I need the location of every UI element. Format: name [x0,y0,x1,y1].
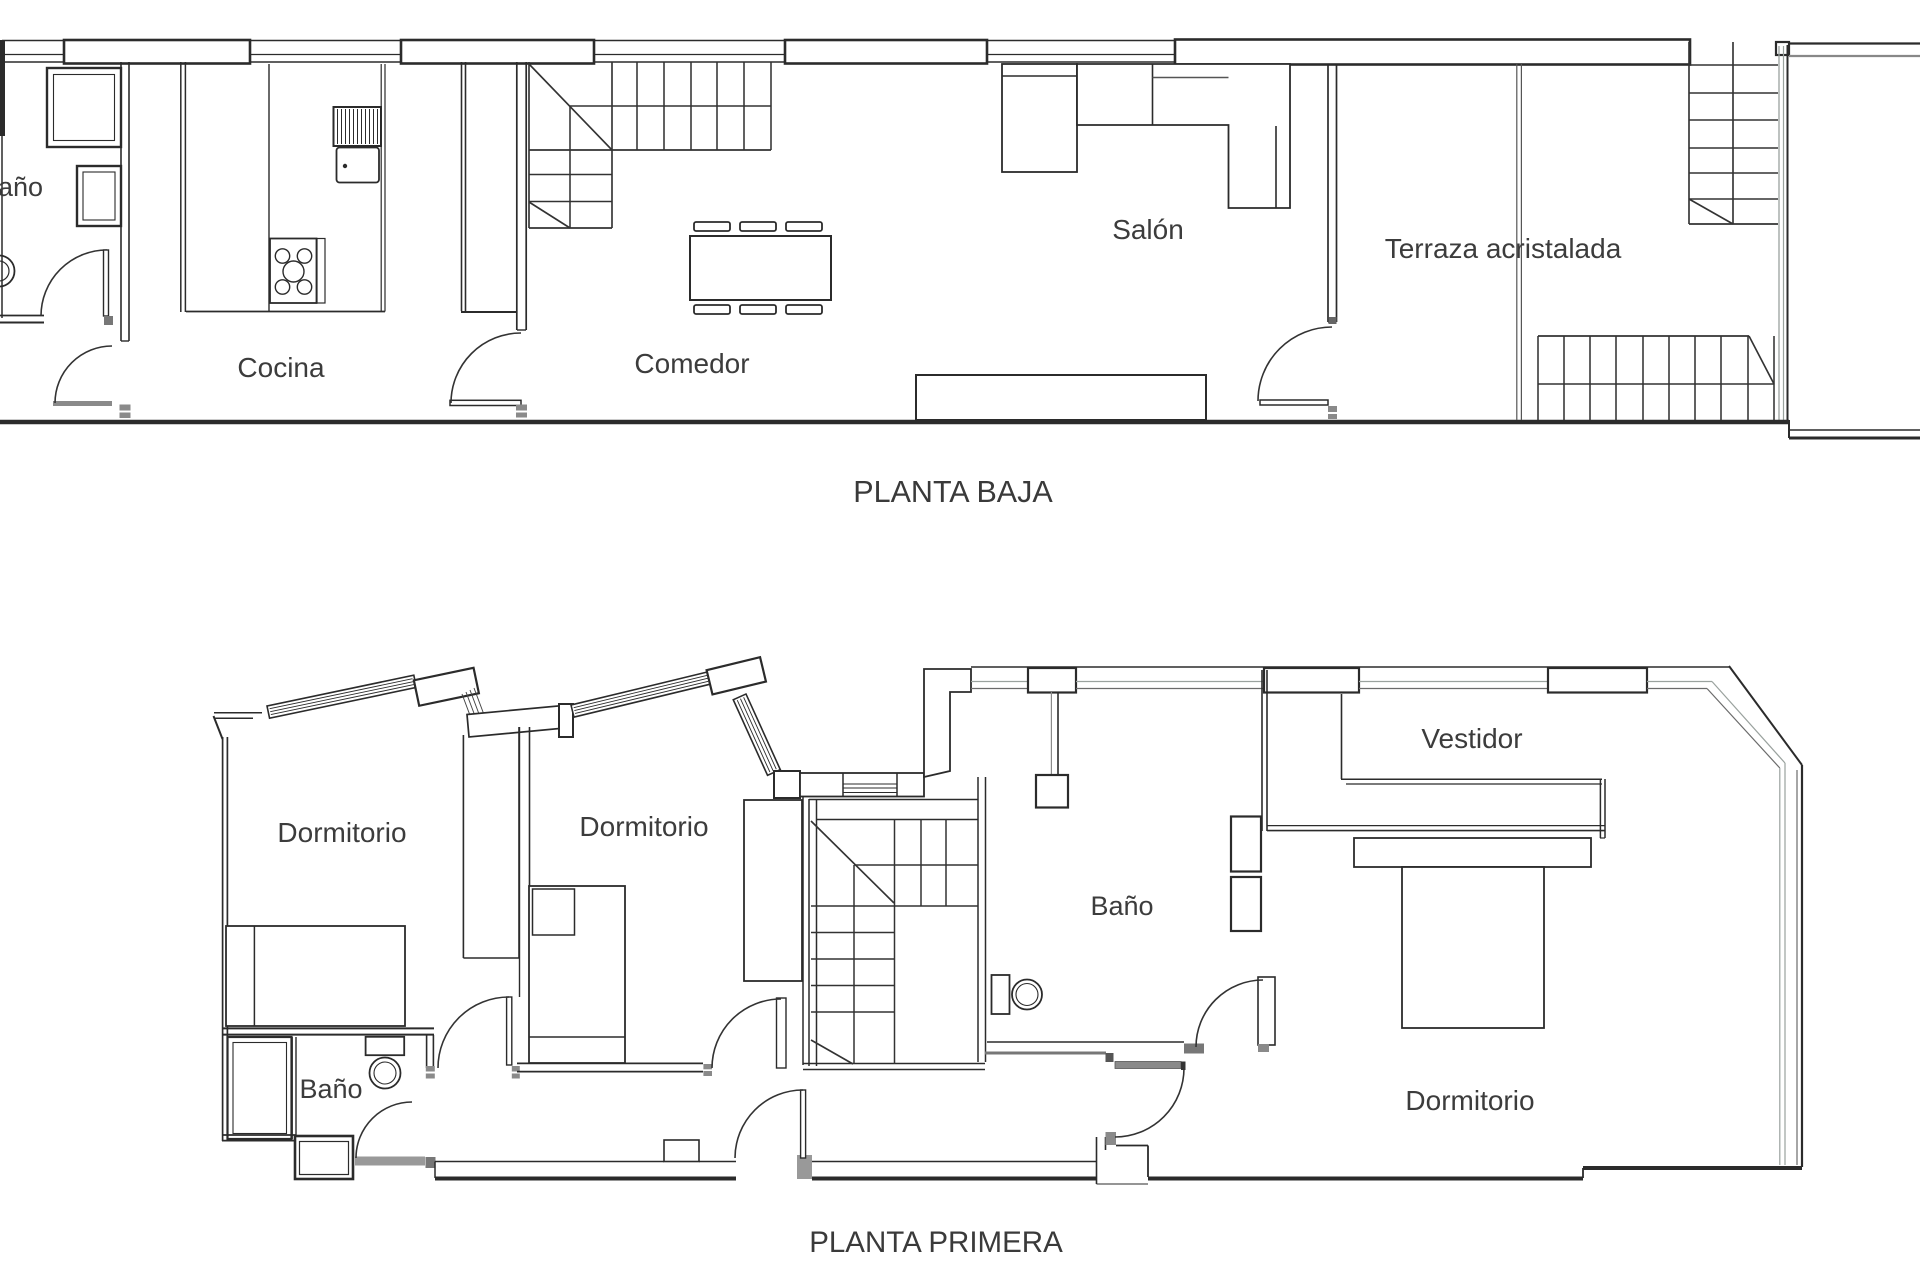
svg-text:Comedor: Comedor [634,348,749,379]
svg-text:Baño: Baño [299,1074,362,1104]
svg-text:Dormitorio: Dormitorio [579,811,708,842]
svg-text:Baño: Baño [1090,891,1153,921]
svg-text:PLANTA PRIMERA: PLANTA PRIMERA [809,1226,1063,1259]
svg-text:Terraza acristalada: Terraza acristalada [1385,233,1622,264]
svg-text:Dormitorio: Dormitorio [277,817,406,848]
svg-text:Cocina: Cocina [237,352,325,383]
svg-text:Vestidor: Vestidor [1421,723,1522,754]
svg-text:Salón: Salón [1112,214,1184,245]
svg-text:PLANTA BAJA: PLANTA BAJA [853,475,1053,509]
svg-text:Dormitorio: Dormitorio [1405,1085,1534,1116]
svg-text:Baño: Baño [0,172,43,202]
